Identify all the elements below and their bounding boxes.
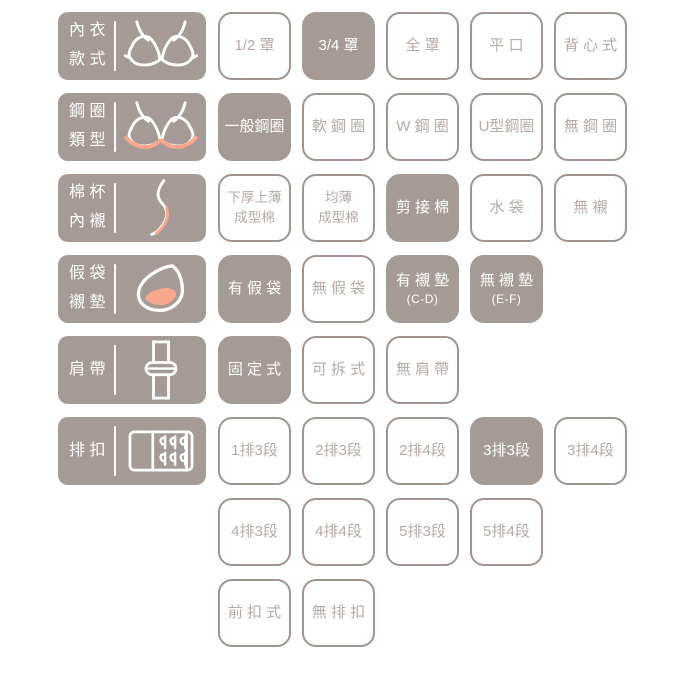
- option-button[interactable]: U型鋼圈: [470, 93, 543, 161]
- category-label: 內 衣款 式: [69, 17, 105, 75]
- option-label: 均薄: [325, 188, 352, 208]
- bra-icon: [122, 18, 200, 74]
- option-label: W 鋼 圈: [396, 117, 449, 137]
- option-label: 2排4段: [399, 441, 446, 461]
- option-label: 前 扣 式: [228, 603, 281, 623]
- option-label: 無 假 袋: [312, 279, 365, 299]
- option-button[interactable]: 固 定 式: [218, 336, 291, 404]
- option-button[interactable]: 軟 鋼 圈: [302, 93, 375, 161]
- option-label: 下厚上薄: [228, 188, 282, 208]
- category-label: 假 袋襯 墊: [69, 260, 105, 318]
- category-divider: [114, 183, 116, 233]
- category-wire-type: 鋼 圈類 型: [58, 93, 206, 161]
- filter-row: 排 扣 1排3段2排3段2排4段3排3段3排4段: [58, 417, 638, 485]
- option-button[interactable]: 下厚上薄成型棉: [218, 174, 291, 242]
- option-button[interactable]: 3排3段: [470, 417, 543, 485]
- option-label: 可 拆 式: [312, 360, 365, 380]
- option-label: 背 心 式: [564, 36, 617, 56]
- strap-icon: [122, 340, 200, 400]
- option-label: 3排3段: [483, 441, 530, 461]
- option-button[interactable]: 有 襯 墊(C-D): [386, 255, 459, 323]
- option-button[interactable]: 無 襯: [554, 174, 627, 242]
- option-button[interactable]: 1排3段: [218, 417, 291, 485]
- category-pad-insert: 假 袋襯 墊: [58, 255, 206, 323]
- option-label: 平 口: [489, 36, 523, 56]
- cup-profile-icon: [122, 178, 200, 238]
- option-label: 成型棉: [318, 208, 359, 228]
- option-button[interactable]: 全 罩: [386, 12, 459, 80]
- option-button[interactable]: 無 假 袋: [302, 255, 375, 323]
- option-label: 無 襯: [573, 198, 607, 218]
- option-sublabel: (C-D): [407, 291, 439, 307]
- option-label: 無 襯 墊: [480, 271, 533, 291]
- category-label: 肩 帶: [69, 356, 105, 385]
- filter-row: 鋼 圈類 型 一般鋼圈軟 鋼 圈W 鋼 圈U型鋼圈無 鋼 圈: [58, 93, 638, 161]
- option-button[interactable]: 無 鋼 圈: [554, 93, 627, 161]
- option-label: 水 袋: [489, 198, 523, 218]
- option-label: 剪 接 棉: [396, 198, 449, 218]
- option-sublabel: (E-F): [492, 291, 522, 307]
- option-label: 固 定 式: [228, 360, 281, 380]
- option-button[interactable]: 水 袋: [470, 174, 543, 242]
- option-label: 4排3段: [231, 522, 278, 542]
- option-label: 4排4段: [315, 522, 362, 542]
- option-button[interactable]: 5排3段: [386, 498, 459, 566]
- option-label: 無 鋼 圈: [564, 117, 617, 137]
- bra-spec-filter-grid: 內 衣款 式 1/2 罩3/4 罩全 罩平 口背 心 式鋼 圈類 型 一般鋼圈軟…: [58, 12, 638, 660]
- option-label: 5排4段: [483, 522, 530, 542]
- option-button[interactable]: 背 心 式: [554, 12, 627, 80]
- option-label: 1排3段: [231, 441, 278, 461]
- option-label: 有 假 袋: [228, 279, 281, 299]
- option-label: 3排4段: [567, 441, 614, 461]
- pad-icon: [122, 262, 200, 316]
- option-button[interactable]: 5排4段: [470, 498, 543, 566]
- category-hook-rows: 排 扣: [58, 417, 206, 485]
- option-button[interactable]: 2排3段: [302, 417, 375, 485]
- option-label: 1/2 罩: [234, 36, 274, 56]
- option-button[interactable]: 平 口: [470, 12, 543, 80]
- option-button[interactable]: 3排4段: [554, 417, 627, 485]
- option-button[interactable]: 無 肩 帶: [386, 336, 459, 404]
- option-label: 軟 鋼 圈: [312, 117, 365, 137]
- option-label: 成型棉: [234, 208, 275, 228]
- option-button[interactable]: 前 扣 式: [218, 579, 291, 647]
- category-divider: [114, 264, 116, 314]
- category-label: 排 扣: [69, 437, 105, 466]
- option-button[interactable]: 有 假 袋: [218, 255, 291, 323]
- option-button[interactable]: 4排4段: [302, 498, 375, 566]
- filter-row: 4排3段4排4段5排3段5排4段: [58, 498, 638, 566]
- category-divider: [114, 426, 116, 476]
- option-button[interactable]: 無 襯 墊(E-F): [470, 255, 543, 323]
- category-divider: [114, 21, 116, 71]
- option-label: 一般鋼圈: [224, 117, 284, 137]
- option-label: 無 排 扣: [312, 603, 365, 623]
- option-button[interactable]: 4排3段: [218, 498, 291, 566]
- filter-row: 肩 帶 固 定 式可 拆 式無 肩 帶: [58, 336, 638, 404]
- category-bra-style: 內 衣款 式: [58, 12, 206, 80]
- option-button[interactable]: 可 拆 式: [302, 336, 375, 404]
- category-label: 棉 杯內 襯: [69, 179, 105, 237]
- option-label: 有 襯 墊: [396, 271, 449, 291]
- option-button[interactable]: 2排4段: [386, 417, 459, 485]
- category-label: 鋼 圈類 型: [69, 98, 105, 156]
- hook-icon: [122, 430, 200, 472]
- option-label: 無 肩 帶: [396, 360, 449, 380]
- category-spacer: [58, 498, 218, 566]
- category-divider: [114, 102, 116, 152]
- option-label: 5排3段: [399, 522, 446, 542]
- option-label: 3/4 罩: [318, 36, 358, 56]
- category-spacer: [58, 579, 218, 647]
- option-button[interactable]: 3/4 罩: [302, 12, 375, 80]
- filter-row: 前 扣 式無 排 扣: [58, 579, 638, 647]
- category-shoulder-strap: 肩 帶: [58, 336, 206, 404]
- filter-row: 棉 杯內 襯 下厚上薄成型棉均薄成型棉剪 接 棉水 袋無 襯: [58, 174, 638, 242]
- option-label: 全 罩: [405, 36, 439, 56]
- option-button[interactable]: 1/2 罩: [218, 12, 291, 80]
- option-button[interactable]: 無 排 扣: [302, 579, 375, 647]
- underwire-icon: [122, 99, 200, 155]
- category-divider: [114, 345, 116, 395]
- option-label: U型鋼圈: [479, 117, 535, 137]
- option-button[interactable]: 均薄成型棉: [302, 174, 375, 242]
- category-cup-lining: 棉 杯內 襯: [58, 174, 206, 242]
- filter-row: 內 衣款 式 1/2 罩3/4 罩全 罩平 口背 心 式: [58, 12, 638, 80]
- option-button[interactable]: 一般鋼圈: [218, 93, 291, 161]
- option-button[interactable]: 剪 接 棉: [386, 174, 459, 242]
- option-label: 2排3段: [315, 441, 362, 461]
- filter-row: 假 袋襯 墊 有 假 袋無 假 袋有 襯 墊(C-D)無 襯 墊(E-F): [58, 255, 638, 323]
- option-button[interactable]: W 鋼 圈: [386, 93, 459, 161]
